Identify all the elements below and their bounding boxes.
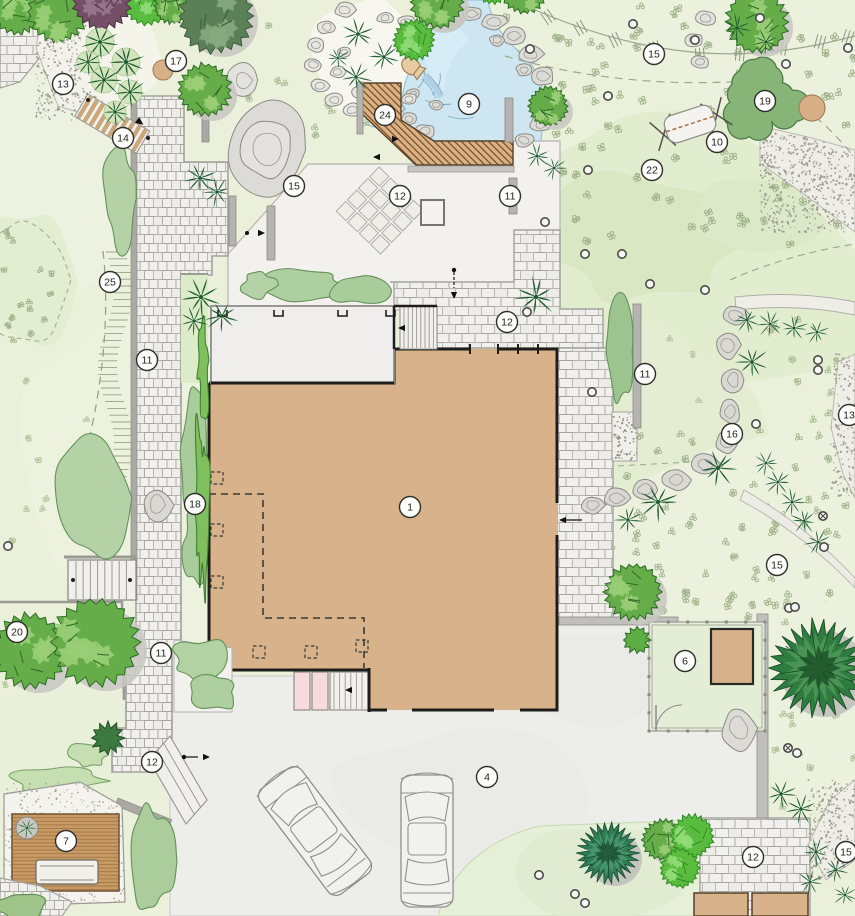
svg-text:22: 22 (646, 165, 658, 177)
svg-text:4: 4 (484, 772, 490, 784)
svg-text:19: 19 (759, 96, 771, 108)
svg-text:18: 18 (189, 499, 201, 511)
svg-text:15: 15 (648, 49, 660, 61)
svg-text:12: 12 (501, 317, 513, 329)
svg-text:13: 13 (57, 79, 69, 91)
svg-text:11: 11 (505, 191, 516, 203)
svg-text:17: 17 (170, 56, 182, 68)
svg-text:25: 25 (104, 277, 116, 289)
svg-text:15: 15 (840, 847, 852, 859)
svg-text:15: 15 (771, 560, 783, 572)
svg-text:7: 7 (63, 836, 69, 848)
svg-text:10: 10 (711, 137, 723, 149)
svg-text:12: 12 (146, 757, 158, 769)
svg-text:15: 15 (288, 181, 300, 193)
svg-text:20: 20 (11, 627, 23, 639)
svg-text:16: 16 (726, 429, 738, 441)
svg-text:1: 1 (407, 502, 413, 514)
svg-text:9: 9 (466, 99, 472, 111)
svg-text:6: 6 (682, 656, 688, 668)
svg-text:11: 11 (156, 648, 167, 660)
svg-text:12: 12 (394, 191, 406, 203)
svg-text:12: 12 (747, 852, 759, 864)
svg-text:11: 11 (142, 355, 153, 367)
svg-text:13: 13 (843, 410, 855, 422)
svg-text:24: 24 (379, 110, 391, 122)
svg-text:11: 11 (640, 369, 651, 381)
svg-text:14: 14 (117, 133, 129, 145)
